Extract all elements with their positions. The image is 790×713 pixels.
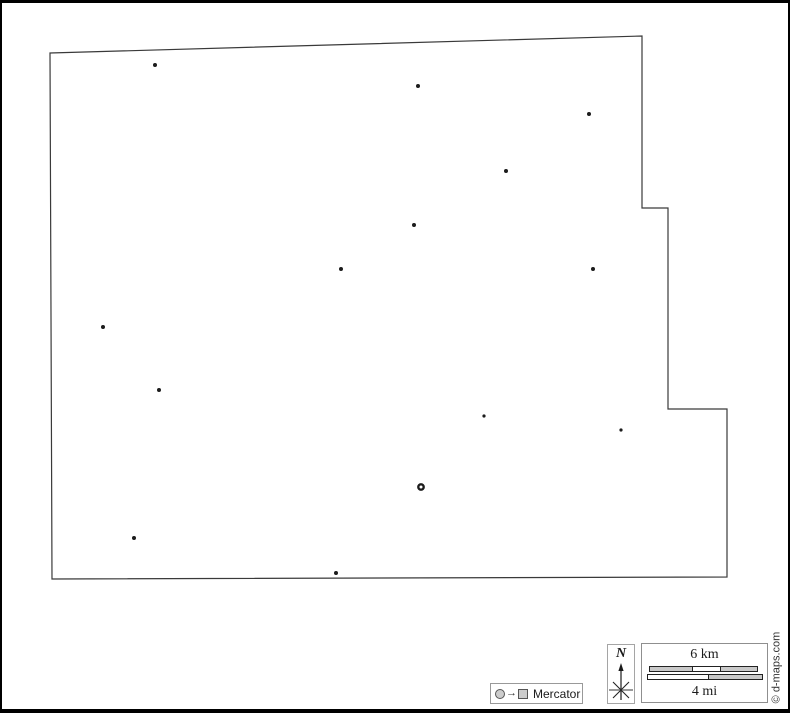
arrow-right-icon: → (506, 688, 517, 699)
km-scale-bar (649, 666, 758, 672)
projection-legend: → Mercator (490, 683, 583, 704)
city-marker (504, 169, 508, 173)
map-canvas: → Mercator N 6 km 4 mi © d-maps.com (0, 0, 790, 713)
city-marker (157, 388, 161, 392)
city-marker (591, 267, 595, 271)
city-marker (587, 112, 591, 116)
km-bar-segment (721, 667, 757, 671)
mi-scale-bar (647, 674, 763, 680)
city-marker (619, 428, 622, 431)
city-marker (482, 414, 485, 417)
county-outline-map (0, 0, 790, 713)
city-marker (132, 536, 136, 540)
north-arrow-icon (608, 662, 634, 702)
city-marker (416, 84, 420, 88)
km-bar-segment (650, 667, 692, 671)
globe-circle-symbol-icon (495, 689, 505, 699)
km-bar-segment (692, 667, 721, 671)
city-marker (153, 63, 157, 67)
scale-km-label: 6 km (642, 647, 767, 662)
projected-square-symbol-icon (518, 689, 528, 699)
projection-label: Mercator (533, 687, 580, 701)
scale-mi-label: 4 mi (642, 684, 767, 699)
city-marker (339, 267, 343, 271)
copyright-text: © d-maps.com (771, 628, 784, 708)
county-boundary (50, 36, 727, 579)
mi-bar-segment (648, 675, 708, 679)
scale-bar-box: 6 km 4 mi (641, 643, 768, 703)
mi-bar-segment (708, 675, 762, 679)
city-marker (101, 325, 105, 329)
city-marker (334, 571, 338, 575)
county-seat-marker (418, 484, 423, 489)
north-label: N (608, 646, 634, 662)
compass-box: N (607, 644, 635, 704)
city-marker (412, 223, 416, 227)
